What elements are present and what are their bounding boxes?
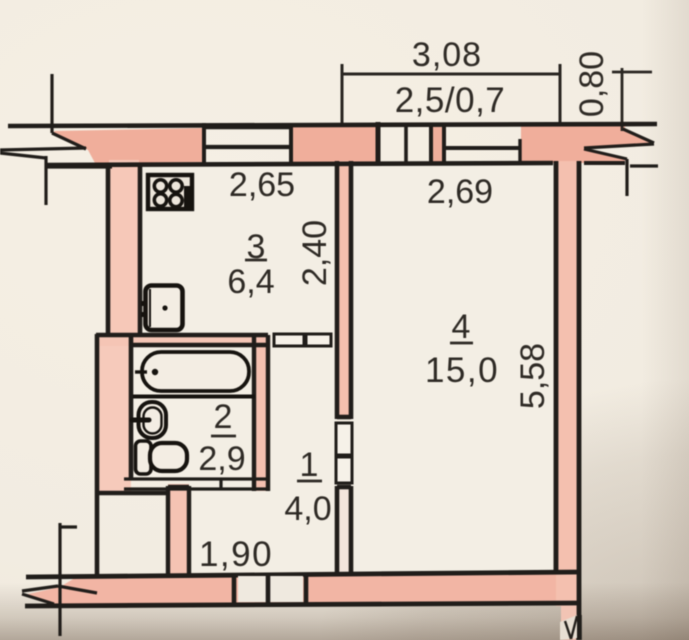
svg-text:3,08: 3,08: [412, 36, 482, 74]
svg-text:2,69: 2,69: [427, 173, 493, 211]
svg-text:15,0: 15,0: [425, 351, 499, 390]
svg-text:4: 4: [452, 308, 471, 346]
svg-text:0,80: 0,80: [573, 51, 611, 117]
svg-text:2: 2: [214, 398, 233, 436]
svg-text:6,4: 6,4: [227, 263, 274, 301]
svg-text:2,5/0,7: 2,5/0,7: [395, 81, 506, 120]
svg-text:2,9: 2,9: [198, 440, 245, 478]
svg-text:2,40: 2,40: [296, 220, 334, 286]
svg-text:4,0: 4,0: [284, 490, 331, 528]
svg-text:5,58: 5,58: [514, 343, 552, 409]
svg-text:1: 1: [300, 446, 319, 484]
svg-text:1,90: 1,90: [199, 535, 273, 574]
svg-text:2,65: 2,65: [229, 166, 295, 204]
